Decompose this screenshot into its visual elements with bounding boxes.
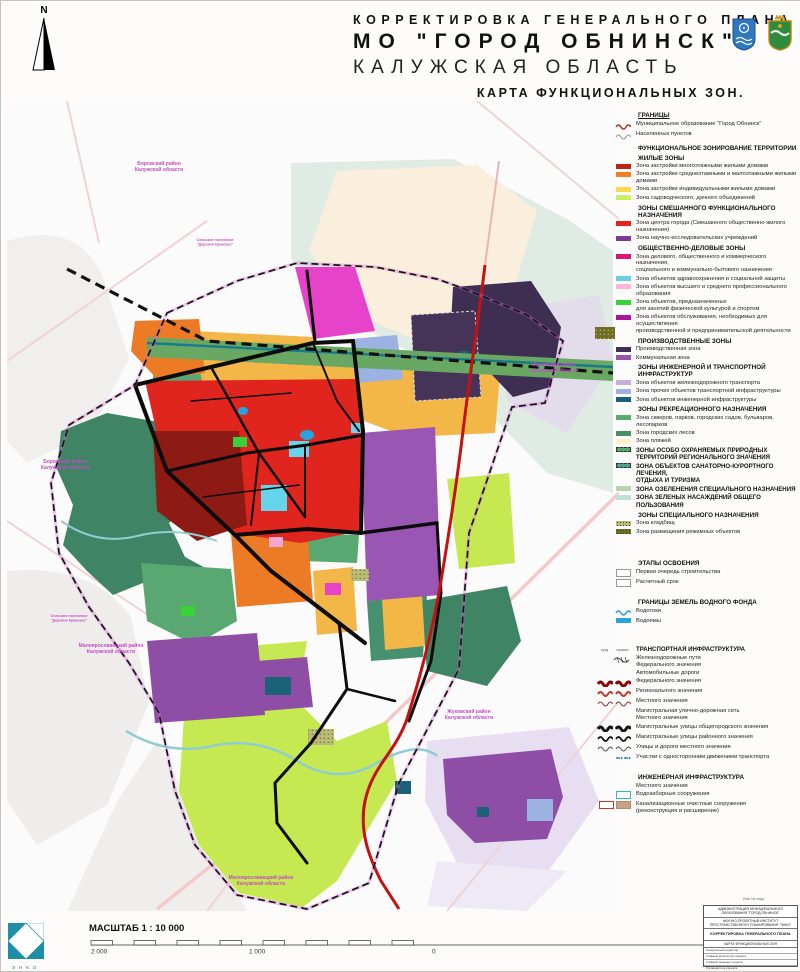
legend-row: Зона скверов, парков, городских садов, б… — [597, 415, 799, 429]
legend-row: ЗОНЫ ОСОБО ОХРАНЯЕМЫХ ПРИРОДНЫХТЕРРИТОРИ… — [597, 447, 799, 461]
legend-label: Участки с односторонним движением трансп… — [631, 754, 799, 761]
legend-heading: ГРАНИЦЫ — [638, 112, 799, 119]
legend-row: Производственная зона — [597, 346, 799, 353]
legend-label: Местного значения — [631, 698, 799, 705]
legend-column-header: сущ. — [597, 647, 613, 652]
legend-symbol — [597, 670, 631, 671]
legend-label: ЗОНЫ ОСОБО ОХРАНЯЕМЫХ ПРИРОДНЫХТЕРРИТОРИ… — [631, 447, 799, 461]
legend-label: Водотоки — [631, 608, 799, 615]
legend-swatch — [616, 618, 631, 623]
legend-row: Зона размещения режимных объектов — [597, 529, 799, 536]
legend-swatch — [616, 355, 631, 360]
legend-row: Расчетный срок — [597, 579, 799, 588]
legend-swatch — [616, 284, 631, 289]
scale-tick-1000: 1 000 — [249, 949, 266, 955]
map-subtitle: КАРТА ФУНКЦИОНАЛЬНЫХ ЗОН. — [353, 86, 745, 100]
legend-row: Зона объектов железнодорожного транспорт… — [597, 380, 799, 387]
legend-symbol — [597, 220, 631, 226]
legend-symbol — [597, 708, 631, 709]
legend-row: Зона объектов обслуживания, необходимых … — [597, 314, 799, 334]
legend-heading: ЗОНЫ РЕКРЕАЦИОННОГО НАЗНАЧЕНИЯ — [638, 406, 799, 413]
legend-heading: ИНЖЕНЕРНАЯ ИНФРАСТРУКТУРА — [638, 774, 799, 781]
legend-symbol — [597, 618, 631, 624]
legend-symbol — [597, 698, 631, 707]
legend-swatch — [616, 397, 631, 402]
stamp-role-row: Руководитель проекта — [704, 966, 797, 972]
legend-column-header: проект. — [615, 647, 631, 652]
stamp-sheet-name: КАРТА ФУНКЦИОНАЛЬНЫХ ЗОН — [704, 941, 797, 948]
legend: ГРАНИЦЫМуниципальное образование "Город … — [597, 107, 799, 816]
legend-symbol — [597, 734, 631, 743]
legend-symbol — [597, 171, 631, 177]
legend-row: Магистральные улицы общегородского значе… — [597, 724, 799, 733]
legend-label: Зона прочих объектов транспортной инфрас… — [631, 388, 799, 395]
legend-row: Зона застройки среднеэтажными и малоэтаж… — [597, 171, 799, 185]
legend-row: Зона объектов высшего и среднего професс… — [597, 284, 799, 298]
stamp-org2: НАУЧНО-ПРОЕКТНЫЙ ИНСТИТУТ ПРОСТРАНСТВЕНН… — [704, 918, 797, 930]
legend-gap — [597, 626, 799, 646]
title-line-2: МО "ГОРОД ОБНИНСК" — [353, 30, 745, 54]
legend-row: Зона застройки индивидуальными жилыми до… — [597, 186, 799, 193]
legend-heading: ГРАНИЦЫ ЗЕМЕЛЬ ВОДНОГО ФОНДА — [638, 599, 799, 606]
legend-symbol — [597, 186, 631, 192]
legend-symbol — [597, 284, 631, 290]
legend-row: ЗОНА ОЗЕЛЕНЕНИЯ СПЕЦИАЛЬНОГО НАЗНАЧЕНИЯ — [597, 486, 799, 493]
legend-symbol — [597, 486, 631, 492]
legend-label: Зона застройки индивидуальными жилыми до… — [631, 186, 799, 193]
legend-label: Магистральные улицы районного значения — [631, 734, 799, 741]
legend-row: сущ.проект.ТРАНСПОРТНАЯ ИНФРАСТРУКТУРА — [597, 646, 799, 653]
legend-swatch — [616, 221, 631, 226]
legend-row: Участки с односторонним движением трансп… — [597, 754, 799, 763]
legend-swatch — [616, 254, 631, 259]
legend-label: Зона пляжей — [631, 438, 799, 445]
legend-swatch — [616, 236, 631, 241]
legend-symbol — [597, 254, 631, 260]
legend-label: Зона объектов обслуживания, необходимых … — [631, 314, 799, 334]
stamp-roles: Генеральный директорГлавный архитектор п… — [704, 948, 797, 972]
legend-gap — [597, 764, 799, 769]
legend-symbol — [597, 314, 631, 320]
kaluga-region-coat-of-arms-icon — [765, 13, 795, 53]
legend-row: Зона объектов, предназначенныхдля заняти… — [597, 299, 799, 313]
legend-row: Федерального значения — [597, 678, 799, 687]
legend-row: Первая очередь строительства — [597, 569, 799, 578]
legend-label: Местного значения — [631, 783, 799, 790]
legend-symbol — [597, 688, 631, 697]
legend-swatch — [616, 187, 631, 192]
legend-swatch — [616, 276, 631, 281]
legend-symbol — [597, 299, 631, 305]
title-stamp: АДМИНИСТРАЦИЯ МУНИЦИПАЛЬНОГО ОБРАЗОВАНИЯ… — [703, 905, 798, 967]
map-label: Малоярославецкий районКалужской области — [229, 874, 294, 887]
legend-label: Улицы и дороги местного значения — [631, 744, 799, 751]
legend-label: Зона скверов, парков, городских садов, б… — [631, 415, 799, 429]
legend-label: Первая очередь строительства — [631, 569, 799, 576]
legend-symbol — [597, 235, 631, 241]
map-label: Боровский районКалужской области — [41, 458, 89, 471]
legend-symbol — [597, 579, 631, 588]
legend-symbol — [597, 430, 631, 436]
stamp-project: КОРРЕКТИРОВКА ГЕНЕРАЛЬНОГО ПЛАНА — [704, 929, 797, 941]
legend-symbol — [597, 608, 631, 617]
legend-symbol — [597, 195, 631, 201]
legend-row: Канализационные очистные сооружения(реко… — [597, 801, 799, 815]
legend-swatch — [616, 164, 631, 169]
legend-symbol — [597, 380, 631, 386]
legend-symbol — [597, 346, 631, 352]
map-label: Жуковский районКалужской области — [445, 708, 493, 721]
legend-row: Зона центра города (Смешанного обществен… — [597, 220, 799, 234]
legend-swatch — [616, 486, 631, 491]
legend-label: Автомобильные дороги — [631, 670, 799, 677]
north-arrow-icon — [29, 16, 59, 74]
north-arrow: N — [27, 5, 61, 79]
obninsk-coat-of-arms-icon — [731, 17, 757, 51]
legend-heading: ОБЩЕСТВЕННО-ДЕЛОВЫЕ ЗОНЫ — [638, 245, 799, 252]
legend-label: Магистральная улично-дорожная сетьМестно… — [631, 708, 799, 722]
legend-label: Зона научно-исследовательских учреждений — [631, 235, 799, 242]
legend-row: Местного значения — [597, 783, 799, 790]
legend-swatch — [616, 463, 631, 468]
legend-swatch — [616, 389, 631, 394]
title-block: КОРРЕКТИРОВКА ГЕНЕРАЛЬНОГО ПЛАНА МО "ГОР… — [353, 13, 745, 100]
legend-row: Зона садоводческого, дачного объединений — [597, 195, 799, 202]
legend-label: Водоемы — [631, 618, 799, 625]
logo-text: ЭНКО — [6, 965, 46, 970]
legend-label: ЗОНА ОБЪЕКТОВ САНАТОРНО-КУРОРТНОГО ЛЕЧЕН… — [631, 463, 799, 485]
map-label: Сельское поселение"Деревня Кривское" — [51, 614, 88, 622]
legend-symbol — [597, 131, 631, 140]
legend-symbol — [597, 754, 631, 763]
legend-row: Зона прочих объектов транспортной инфрас… — [597, 388, 799, 395]
legend-label: Населенных пунктов — [631, 131, 799, 138]
legend-label: Зона объектов высшего и среднего професс… — [631, 284, 799, 298]
legend-swatch — [616, 431, 631, 436]
legend-row: Зона застройки многоэтажными жилыми дома… — [597, 163, 799, 170]
legend-row: Регионального значения — [597, 688, 799, 697]
legend-symbol — [597, 447, 631, 453]
institute-logo: ЭНКО — [6, 923, 46, 970]
legend-row: Зона пляжей — [597, 438, 799, 445]
legend-heading: ЭТАПЫ ОСВОЕНИЯ — [638, 560, 799, 567]
legend-label: Федерального значения — [631, 678, 799, 685]
legend-symbol — [597, 438, 631, 444]
legend-row: ЗОНА ОБЪЕКТОВ САНАТОРНО-КУРОРТНОГО ЛЕЧЕН… — [597, 463, 799, 485]
legend-label: Зона объектов здравоохранения и социальн… — [631, 276, 799, 283]
legend-label: Производственная зона — [631, 346, 799, 353]
legend-swatch — [616, 495, 631, 500]
legend-row: Зона городских лесов — [597, 430, 799, 437]
legend-swatch — [616, 172, 631, 177]
legend-row: Зона объектов здравоохранения и социальн… — [597, 276, 799, 283]
legend-row: Муниципальное образование "Город Обнинск… — [597, 121, 799, 130]
legend-heading: ФУНКЦИОНАЛЬНОЕ ЗОНИРОВАНИЕ ТЕРРИТОРИИ — [638, 145, 799, 152]
legend-swatch — [616, 447, 631, 452]
legend-swatch — [616, 439, 631, 444]
legend-symbol — [597, 724, 631, 733]
legend-label: Зона садоводческого, дачного объединений — [631, 195, 799, 202]
legend-symbol — [597, 783, 631, 784]
legend-row: Автомобильные дороги — [597, 670, 799, 677]
legend-symbol — [597, 463, 631, 469]
legend-label: Водозаборные сооружения — [631, 791, 799, 798]
legend-symbol — [597, 520, 631, 526]
legend-label: Муниципальное образование "Город Обнинск… — [631, 121, 799, 128]
legend-label: Зона размещения режимных объектов — [631, 529, 799, 536]
legend-symbol — [597, 276, 631, 282]
legend-row: Зона кладбищ — [597, 520, 799, 527]
legend-swatch — [616, 380, 631, 385]
stamp-org1: АДМИНИСТРАЦИЯ МУНИЦИПАЛЬНОГО ОБРАЗОВАНИЯ… — [704, 906, 797, 918]
map-label: Жуковский районКалужской области — [530, 361, 578, 374]
legend-label: Коммунальная зона — [631, 355, 799, 362]
legend-row: ЗОНА ЗЕЛЕНЫХ НАСАЖДЕНИЙ ОБЩЕГО ПОЛЬЗОВАН… — [597, 494, 799, 508]
title-line-3: КАЛУЖСКАЯ ОБЛАСТЬ — [353, 57, 745, 79]
legend-label: Канализационные очистные сооружения(реко… — [631, 801, 799, 815]
legend-swatch — [616, 529, 631, 534]
legend-heading: ЖИЛЫЕ ЗОНЫ — [638, 155, 799, 162]
legend-label: Зона объектов инженерной инфраструктуры — [631, 397, 799, 404]
legend-row: Железнодорожные путиФедерального значени… — [597, 655, 799, 669]
legend-label: Зона делового, общественного и коммерчес… — [631, 254, 799, 274]
legend-symbol — [597, 388, 631, 394]
legend-swatch — [616, 521, 631, 526]
legend-symbol — [597, 121, 631, 130]
scale-tick-2000-left: 2 000 — [91, 949, 108, 955]
legend-label: Железнодорожные путиФедерального значени… — [631, 655, 799, 669]
legend-symbol — [597, 678, 631, 687]
legend-heading: ЗОНЫ СМЕШАННОГО ФУНКЦИОНАЛЬНОГО НАЗНАЧЕН… — [638, 205, 799, 219]
legend-row: Зона научно-исследовательских учреждений — [597, 235, 799, 242]
scale-bar: 2 000 1 000 0 2 000 МЕТРЫ — [89, 934, 795, 954]
legend-symbol — [597, 529, 631, 535]
scale-block: МАСШТАБ 1 : 10 000 2 000 1 000 0 2 000 М… — [89, 923, 795, 959]
legend-row: Магистральная улично-дорожная сетьМестно… — [597, 708, 799, 722]
legend-symbol — [597, 801, 631, 810]
legend-row: Местного значения — [597, 698, 799, 707]
functional-zones-map: Боровский районКалужской областиБоровски… — [7, 101, 619, 913]
legend-label: Зона объектов, предназначенныхдля заняти… — [631, 299, 799, 313]
legend-swatch — [616, 415, 631, 420]
legend-label: Зона кладбищ — [631, 520, 799, 527]
legend-swatch — [616, 315, 631, 320]
legend-symbol — [597, 397, 631, 403]
legend-symbol — [597, 569, 631, 578]
legend-row: Улицы и дороги местного значения — [597, 744, 799, 753]
north-label: N — [27, 5, 61, 16]
legend-swatch — [616, 347, 631, 352]
title-line-1: КОРРЕКТИРОВКА ГЕНЕРАЛЬНОГО ПЛАНА — [353, 13, 745, 27]
enko-logo-icon — [8, 923, 44, 959]
legend-gap — [597, 589, 799, 594]
legend-label: Магистральные улицы общегородского значе… — [631, 724, 799, 731]
legend-symbol: сущ.проект. — [597, 646, 631, 652]
legend-symbol — [597, 791, 631, 800]
scale-tick-0: 0 — [432, 949, 436, 955]
legend-symbol — [597, 415, 631, 421]
legend-label: Расчетный срок — [631, 579, 799, 586]
legend-row: Водозаборные сооружения — [597, 791, 799, 800]
legend-symbol — [597, 355, 631, 361]
legend-heading: ПРОИЗВОДСТВЕННЫЕ ЗОНЫ — [638, 338, 799, 345]
legend-row: Зона делового, общественного и коммерчес… — [597, 254, 799, 274]
legend-heading: ЗОНЫ ИНЖЕНЕРНОЙ И ТРАНСПОРТНОЙ ИНФРАСТРУ… — [638, 364, 799, 378]
legend-row: Зона объектов инженерной инфраструктуры — [597, 397, 799, 404]
map-sheet: N КОРРЕКТИРОВКА ГЕНЕРАЛЬНОГО ПЛАНА МО "Г… — [0, 0, 800, 972]
legend-symbol — [597, 163, 631, 169]
legend-row: Магистральные улицы районного значения — [597, 734, 799, 743]
scale-label: МАСШТАБ 1 : 10 000 — [89, 923, 795, 934]
legend-label: ЗОНА ЗЕЛЕНЫХ НАСАЖДЕНИЙ ОБЩЕГО ПОЛЬЗОВАН… — [631, 494, 799, 508]
legend-symbol — [597, 655, 631, 665]
legend-label: ЗОНА ОЗЕЛЕНЕНИЯ СПЕЦИАЛЬНОГО НАЗНАЧЕНИЯ — [631, 486, 799, 493]
map-label: Сельское поселение"Деревня Кривское" — [197, 238, 234, 246]
legend-label: Зона городских лесов — [631, 430, 799, 437]
legend-label: Зона объектов железнодорожного транспорт… — [631, 380, 799, 387]
legend-row: Коммунальная зона — [597, 355, 799, 362]
legend-row: Населенных пунктов — [597, 131, 799, 140]
inventory-note: Инв. № подл. — [743, 897, 765, 901]
legend-gap — [597, 537, 799, 555]
legend-label: Зона застройки многоэтажными жилыми дома… — [631, 163, 799, 170]
legend-symbol — [597, 494, 631, 500]
legend-swatch — [616, 195, 631, 200]
map-label: Малоярославецкий районКалужской области — [79, 642, 144, 655]
legend-label: Зона застройки среднеэтажными и малоэтаж… — [631, 171, 799, 185]
legend-swatch — [616, 300, 631, 305]
legend-label: ТРАНСПОРТНАЯ ИНФРАСТРУКТУРА — [631, 646, 799, 653]
map-label: Боровский районКалужской области — [135, 160, 183, 173]
legend-row: Водотоки — [597, 608, 799, 617]
legend-heading: ЗОНЫ СПЕЦИАЛЬНОГО НАЗНАЧЕНИЯ — [638, 512, 799, 519]
legend-label: Регионального значения — [631, 688, 799, 695]
legend-symbol — [597, 744, 631, 753]
legend-label: Зона центра города (Смешанного обществен… — [631, 220, 799, 234]
legend-row: Водоемы — [597, 618, 799, 625]
